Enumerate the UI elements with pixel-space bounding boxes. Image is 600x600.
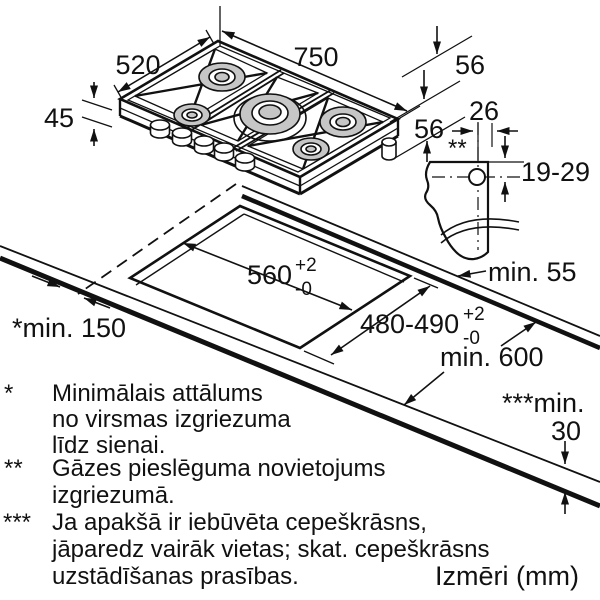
break-line-2	[441, 227, 519, 243]
burner-back-left	[199, 63, 245, 91]
dim-label-26: 26	[469, 96, 499, 126]
dim-label-min-30-value: 30	[551, 416, 581, 446]
footnote-3-line-3: uzstādīšanas prasības.	[52, 563, 299, 590]
footnote-2-marker: **	[4, 455, 23, 482]
installation-diagram-page: 750 520 45 56 56 26 ** 19	[0, 0, 600, 600]
dim-label-min-600: min. 600	[440, 342, 544, 372]
dim-label-480-490: 480-490	[360, 309, 459, 339]
knob	[151, 120, 170, 138]
footnote-3-line-2: jāparedz vairāk vietas; skat. cepeškrāsn…	[51, 536, 490, 563]
burner-center-wok	[234, 94, 306, 141]
knob	[236, 153, 255, 171]
dim-label-min-30-prefix: ***min.	[502, 388, 585, 418]
gas-connection-stub	[382, 138, 396, 160]
hob-isometric-view	[120, 41, 398, 194]
dim-label-45: 45	[44, 103, 74, 133]
gas-inlet-hole	[469, 169, 485, 185]
knob	[173, 128, 192, 146]
dim-label-560-tol-plus: +2	[295, 255, 317, 276]
dimension-min-55	[458, 271, 486, 276]
footnote-2-line-1: Gāzes pieslēguma novietojums	[52, 455, 386, 482]
burner-back-right	[320, 107, 366, 137]
dim-label-560: 560	[247, 260, 292, 290]
dim-label-min-150: *min. 150	[12, 313, 126, 343]
dim-label-750: 750	[293, 42, 338, 72]
footnote-2-line-2: izgriezumā.	[52, 482, 175, 509]
footnotes: * Minimālais attālums no virsmas izgriez…	[3, 380, 490, 590]
dimension-45	[82, 82, 112, 146]
dim-label-56-side: 56	[414, 114, 444, 144]
knob	[195, 136, 214, 154]
cutout-inner-edge-left	[136, 214, 244, 285]
dimension-min-150	[32, 276, 110, 308]
dim-label-520: 520	[115, 50, 160, 80]
units-label: Izmēri (mm)	[435, 561, 579, 591]
hob-installation-drawing: 750 520 45 56 56 26 ** 19	[0, 0, 600, 600]
dim-label-560-tol-minus: -0	[295, 279, 312, 300]
dim-label-19-29: 19-29	[521, 157, 590, 187]
dim-label-56-top: 56	[455, 50, 485, 80]
burner-front-left	[174, 104, 210, 126]
knob	[215, 143, 234, 161]
footnote-1-line-1: Minimālais attālums	[52, 380, 263, 407]
dim-label-min-55: min. 55	[488, 257, 577, 287]
footnote-3-marker: ***	[3, 509, 31, 536]
footnote-1-marker: *	[4, 380, 13, 407]
bracket-footnote-marker: **	[448, 135, 467, 162]
footnote-1-line-2: no virsmas izgriezuma	[52, 406, 291, 433]
dim-label-480-tol-plus: +2	[463, 304, 485, 325]
burner-front-right	[293, 138, 329, 160]
cutout-ext-line-south	[304, 351, 334, 364]
projection-dashed-line	[78, 184, 236, 294]
footnote-3-line-1: Ja apakšā ir iebūvēta cepeškrāsns,	[52, 509, 427, 536]
